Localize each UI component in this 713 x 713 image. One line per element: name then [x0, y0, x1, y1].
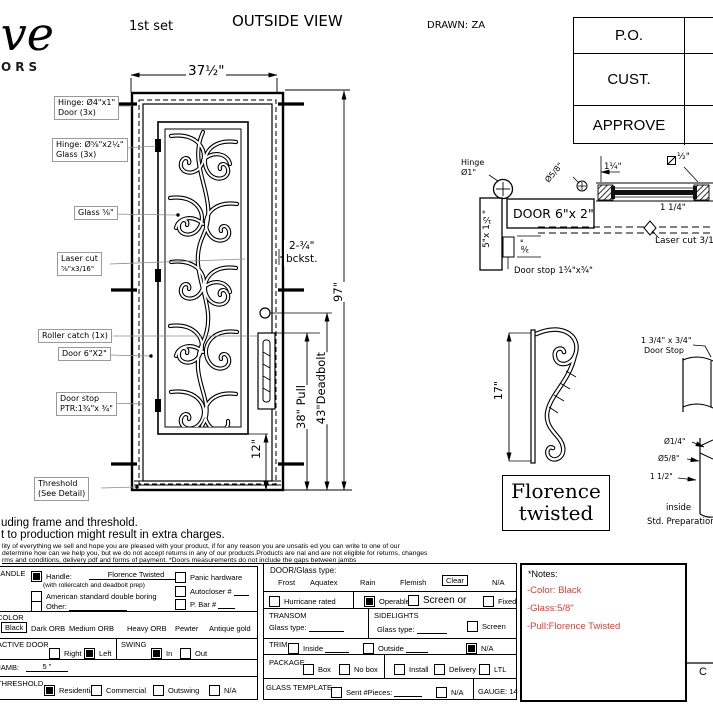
trim-inside-blank[interactable]: [325, 645, 349, 653]
hurricane-checkbox[interactable]: [269, 596, 280, 607]
callout-glass: Glass ⅝": [74, 206, 118, 220]
callout-laser-cut: Laser cut ⅝"x3/16": [57, 252, 102, 276]
trim-section-label: TRIM: [269, 640, 287, 649]
package-ltl-checkbox[interactable]: [479, 664, 490, 675]
trim-outside-option: Outside: [363, 643, 428, 654]
dim-pull: 38" Pull: [296, 385, 308, 429]
active-door-row: ACTIVE DOOR Right Left SWING In Out: [0, 638, 257, 660]
section-half-dim: ½": [677, 152, 690, 163]
glass-template-na-label: N/A: [451, 688, 464, 697]
operable-checkbox[interactable]: [364, 596, 375, 607]
active-right-checkbox[interactable]: [49, 648, 60, 659]
color-option[interactable]: Antique gold: [209, 624, 251, 633]
sidelights-screen-checkbox[interactable]: [467, 621, 478, 632]
threshold-checkbox[interactable]: [91, 685, 102, 696]
autocloser-option: Autocloser #: [175, 586, 249, 597]
approval-row: P.O.: [574, 18, 713, 53]
spec-sheet: ive ORS 1st set OUTSIDE VIEW DRAWN: ZA P…: [0, 0, 713, 713]
divider: [116, 639, 117, 660]
callout-text: Laser cut: [61, 254, 98, 263]
callout-hinge-door: Hinge: Ø4"x1" Door (3x): [54, 96, 119, 120]
callout-text: Hinge: Ø4"x1": [58, 98, 115, 107]
package-row: PACKAGE Box No box Install Delivery LTL: [264, 654, 516, 679]
form-left-block: HANDLE Handle: Florence Twisted (with ro…: [0, 566, 258, 700]
dim-backset: 2-¾" bckst.: [284, 240, 319, 266]
dim-text: Hinge: [461, 158, 484, 167]
handle-value[interactable]: Florence Twisted: [89, 570, 183, 580]
transom-sidelights-row: TRANSOM Glass type: SIDELIGHTS Glass typ…: [264, 608, 516, 639]
logo-sub: ORS: [1, 60, 41, 75]
glass-template-sent-option: Sent #Pieces:: [331, 687, 422, 698]
callout-door: Door 6"X2": [58, 347, 111, 361]
glass-template-row: GLASS TEMPLATE Sent #Pieces: N/A GAUGE: …: [264, 678, 516, 700]
active-door-section-label: ACTIVE DOOR: [0, 640, 49, 649]
stop-detail-label: 1 3/4" x 3/4" Door Stop: [641, 336, 692, 356]
fixed-label: Fixed: [498, 597, 516, 606]
color-section-label: COLOR: [0, 613, 24, 622]
jamb-row: JAMB: 5 ": [0, 659, 257, 677]
callout-text: PTR:1¾"x ¾": [60, 404, 113, 413]
note-line: -Pull:Florence Twisted: [527, 621, 620, 632]
stop-dia-quarter: Ø1/4": [664, 437, 685, 446]
threshold-row: THRESHOLD Residential Commercial Outswin…: [0, 676, 257, 700]
american-boring-label: American standard double boring: [46, 592, 157, 601]
autocloser-checkbox[interactable]: [175, 586, 186, 597]
callout-text: Door stop: [60, 394, 99, 403]
dim-width: 37½": [186, 63, 226, 80]
active-left-option: Left: [84, 648, 112, 659]
glass-type-row: DOOR/Glass type: Frost Aquatex Rain Flem…: [264, 564, 516, 591]
section-glass-width-dim: 1 1/4": [660, 203, 686, 214]
glass-template-sent-checkbox[interactable]: [331, 687, 342, 698]
drawn-by: DRAWN: ZA: [427, 20, 485, 33]
set-label: 1st set: [129, 19, 173, 35]
callout-text: (See Detail): [38, 489, 85, 498]
callout-text: ⅝"x3/16": [61, 265, 94, 273]
swing-in-option: In: [151, 648, 172, 659]
glass-template-blank[interactable]: [394, 689, 422, 697]
trim-na-checkbox[interactable]: [466, 643, 477, 654]
handle-note: (with rollercatch and deadbolt prep): [43, 582, 145, 589]
jamb-section-label: JAMB:: [0, 663, 19, 672]
trim-inside-option: Inside: [288, 643, 349, 654]
logo-script: ive: [0, 6, 54, 64]
handle-label: Handle:: [46, 572, 72, 581]
stop-caption: Std. Preparation: [647, 517, 713, 528]
disclaimer-line: t to production might result in extra ch…: [1, 528, 225, 542]
autocloser-label: Autocloser #: [190, 587, 232, 596]
note-line: -Glass:5/8": [527, 603, 574, 614]
approval-row-value[interactable]: [685, 54, 713, 105]
signature-label: C: [699, 666, 707, 680]
approval-row: CUST.: [574, 53, 713, 105]
divider: [473, 679, 474, 700]
view-title: OUTSIDE VIEW: [232, 12, 343, 31]
callout-threshold: Threshold (See Detail): [34, 477, 89, 501]
threshold-checkbox[interactable]: [153, 685, 164, 696]
package-box-label: Box: [318, 665, 331, 674]
approval-table: P.O. CUST. APPROVE: [573, 17, 713, 144]
glass-type-selected[interactable]: Clear: [442, 575, 468, 586]
approval-row-label: P.O.: [574, 18, 685, 53]
sidelights-glass-blank[interactable]: [417, 626, 447, 634]
section-gap-dim: 1¼": [604, 162, 622, 173]
glass-type-na[interactable]: N/A: [492, 578, 505, 587]
active-left-checkbox[interactable]: [84, 648, 95, 659]
trim-na-option: N/A: [466, 643, 494, 654]
hurricane-option: Hurricane rated: [269, 596, 336, 607]
package-nobox-option: No box: [339, 664, 378, 675]
divider: [384, 655, 385, 679]
callout-hinge-glass: Hinge: Ø⅝"x2¼" Glass (3x): [52, 138, 128, 162]
pull-name-box: Florence twisted: [502, 475, 610, 531]
transom-section-label: TRANSOM: [269, 611, 307, 620]
panic-option: Panic hardware: [175, 572, 242, 583]
threshold-label: Outswing: [168, 686, 199, 695]
threshold-option: Outswing: [153, 685, 199, 696]
trim-row: TRIM Inside Outside N/A: [264, 638, 516, 655]
divider: [353, 592, 354, 609]
hurricane-label: Hurricane rated: [284, 597, 336, 606]
threshold-checkbox[interactable]: [209, 685, 220, 696]
trim-outside-checkbox[interactable]: [363, 643, 374, 654]
transom-glass-type: Glass type:: [269, 623, 344, 632]
panic-label: Panic hardware: [190, 573, 242, 582]
section-door-label: DOOR 6"x 2": [513, 206, 594, 222]
approval-row-label: CUST.: [574, 54, 685, 105]
callout-text: Hinge: Ø⅝"x2¼": [56, 140, 124, 149]
package-delivery-label: Delivery: [449, 665, 476, 674]
threshold-label: Commercial: [106, 686, 146, 695]
trim-inside-label: Inside: [303, 644, 323, 653]
active-right-label: Right: [64, 649, 82, 658]
stop-inside-label: inside: [666, 503, 691, 514]
pull-dim: 17": [493, 381, 504, 400]
threshold-section-label: THRESHOLD: [0, 679, 43, 688]
divider: [368, 609, 369, 639]
package-delivery-option: Delivery: [434, 664, 476, 675]
dim-bottom: 12": [251, 439, 263, 459]
approval-row-label: APPROVE: [574, 106, 685, 145]
package-box-checkbox[interactable]: [303, 664, 314, 675]
gauge-label: GAUGE: 14: [478, 687, 518, 696]
autocloser-blank[interactable]: [234, 588, 249, 596]
trim-na-label: N/A: [481, 644, 494, 653]
color-option-selected[interactable]: Black: [1, 622, 27, 633]
square-symbol-icon: [667, 156, 676, 165]
swing-in-checkbox[interactable]: [151, 648, 162, 659]
swing-out-label: Out: [195, 649, 207, 658]
form-middle-block: DOOR/Glass type: Frost Aquatex Rain Flem…: [263, 563, 517, 700]
section-laser-cut-label: Laser cut 3/16: [655, 236, 713, 247]
section-door-stop-label: Door stop 1¾"x¾": [514, 266, 593, 277]
package-delivery-checkbox[interactable]: [434, 664, 445, 675]
sidelights-section-label: SIDELIGHTS: [374, 611, 419, 620]
approval-row-value[interactable]: [685, 106, 713, 145]
glass-type-option[interactable]: Aquatex: [310, 578, 338, 587]
dim-text: Door Stop: [641, 346, 684, 355]
sidelights-screen-option: Screen: [467, 621, 506, 632]
callout-text: Threshold: [38, 479, 77, 488]
dim-text: 2-¾": [289, 240, 314, 252]
glass-template-na-checkbox[interactable]: [436, 687, 447, 698]
dim-height: 97": [333, 282, 345, 302]
transom-glass-label: Glass type:: [269, 623, 307, 632]
pbar-option: P. Bar #: [175, 599, 235, 610]
jamb-value[interactable]: 5 ": [26, 662, 68, 672]
other-label: Other:: [46, 602, 67, 611]
package-section-label: PACKAGE: [269, 658, 305, 667]
package-install-checkbox[interactable]: [394, 664, 405, 675]
dim-text: bckst.: [286, 253, 317, 265]
glass-type-option[interactable]: Flemish: [400, 578, 426, 587]
section-jamb-dim: 5"x 1½": [483, 210, 492, 248]
glass-template-na-option: N/A: [436, 687, 464, 698]
swing-in-label: In: [166, 649, 172, 658]
glass-template-sent-label: Sent #Pieces:: [346, 688, 392, 697]
callout-door-stop: Door stop PTR:1¾"x ¾": [56, 392, 117, 416]
sidelights-screen-label: Screen: [482, 622, 506, 631]
handle-checkbox[interactable]: [31, 571, 42, 582]
section-stop-offset-dim: ⅜": [521, 239, 530, 253]
approval-row: APPROVE: [574, 105, 713, 145]
fixed-checkbox[interactable]: [483, 596, 494, 607]
section-hinge-label: Hinge Ø1": [461, 158, 484, 178]
transom-glass-blank[interactable]: [309, 624, 344, 632]
pull-name: Florence: [503, 480, 609, 503]
package-nobox-label: No box: [354, 665, 378, 674]
glass-type-section-label: DOOR/Glass type:: [270, 566, 336, 575]
active-right-option: Right: [49, 648, 82, 659]
threshold-label: N/A: [224, 686, 237, 695]
handle-section-label: HANDLE: [0, 569, 25, 578]
active-left-label: Left: [99, 649, 112, 658]
hurricane-operable-row: Hurricane rated Operable Screen or Fixed: [264, 591, 516, 609]
threshold-option: Residential: [44, 685, 96, 696]
dim-text: Ø1": [461, 168, 476, 177]
package-ltl-label: LTL: [494, 665, 506, 674]
swing-section-label: SWING: [121, 640, 146, 649]
package-ltl-option: LTL: [479, 664, 506, 675]
threshold-option: Commercial: [91, 685, 146, 696]
threshold-option: N/A: [209, 685, 237, 696]
handle-option: Handle:: [31, 571, 72, 582]
dim-text: 1 3/4" x 3/4": [641, 336, 692, 345]
callout-text: Door (3x): [58, 108, 96, 117]
note-line: -Color: Black: [527, 585, 581, 596]
pbar-checkbox[interactable]: [175, 599, 186, 610]
color-row: COLOR Black Dark ORB Medium ORB Heavy OR…: [0, 611, 257, 639]
notes-title: *Notes:: [528, 569, 558, 579]
trim-outside-blank[interactable]: [406, 645, 428, 653]
package-install-option: Install: [394, 664, 429, 675]
package-nobox-checkbox[interactable]: [339, 664, 350, 675]
pbar-label: P. Bar #: [190, 600, 216, 609]
trim-outside-label: Outside: [378, 644, 404, 653]
package-box-option: Box: [303, 664, 331, 675]
color-option[interactable]: Dark ORB: [31, 624, 65, 633]
pull-name: twisted: [503, 503, 609, 523]
screen-option: Screen or: [408, 595, 466, 606]
callout-text: Glass (3x): [56, 150, 96, 159]
glass-template-section-label: GLASS TEMPLATE: [266, 683, 332, 692]
package-install-label: Install: [409, 665, 429, 674]
screen-checkbox[interactable]: [408, 595, 419, 606]
dim-deadbolt: 43"Deadbolt: [316, 352, 328, 424]
stop-oneandhalf: 1 1/2": [650, 472, 673, 481]
fixed-option: Fixed: [483, 596, 516, 607]
pbar-blank[interactable]: [218, 601, 235, 609]
trim-inside-checkbox[interactable]: [288, 643, 299, 654]
glass-type-option[interactable]: Frost: [278, 578, 295, 587]
panic-checkbox[interactable]: [175, 572, 186, 583]
color-option[interactable]: Heavy ORB: [127, 624, 167, 633]
handle-row: HANDLE Handle: Florence Twisted (with ro…: [0, 567, 257, 611]
operable-label: Operable: [379, 597, 410, 606]
swing-out-option: Out: [180, 648, 207, 659]
threshold-checkbox[interactable]: [44, 685, 55, 696]
notes-block: *Notes: -Color: Black -Glass:5/8" -Pull:…: [520, 563, 687, 702]
sidelights-glass-type: Glass type:: [377, 625, 447, 634]
callout-roller-catch: Roller catch (1x): [38, 329, 112, 343]
color-option[interactable]: Medium ORB: [69, 624, 114, 633]
sidelights-glass-label: Glass type:: [377, 625, 415, 634]
screen-label: Screen or: [423, 595, 466, 606]
operable-option: Operable: [364, 596, 410, 607]
swing-out-checkbox[interactable]: [180, 648, 191, 659]
glass-type-option[interactable]: Rain: [360, 578, 375, 587]
other-blank[interactable]: [69, 603, 127, 611]
approval-row-value[interactable]: [685, 18, 713, 53]
stop-dia-fiveeighths: Ø5/8": [658, 454, 679, 463]
color-option[interactable]: Pewter: [175, 624, 198, 633]
